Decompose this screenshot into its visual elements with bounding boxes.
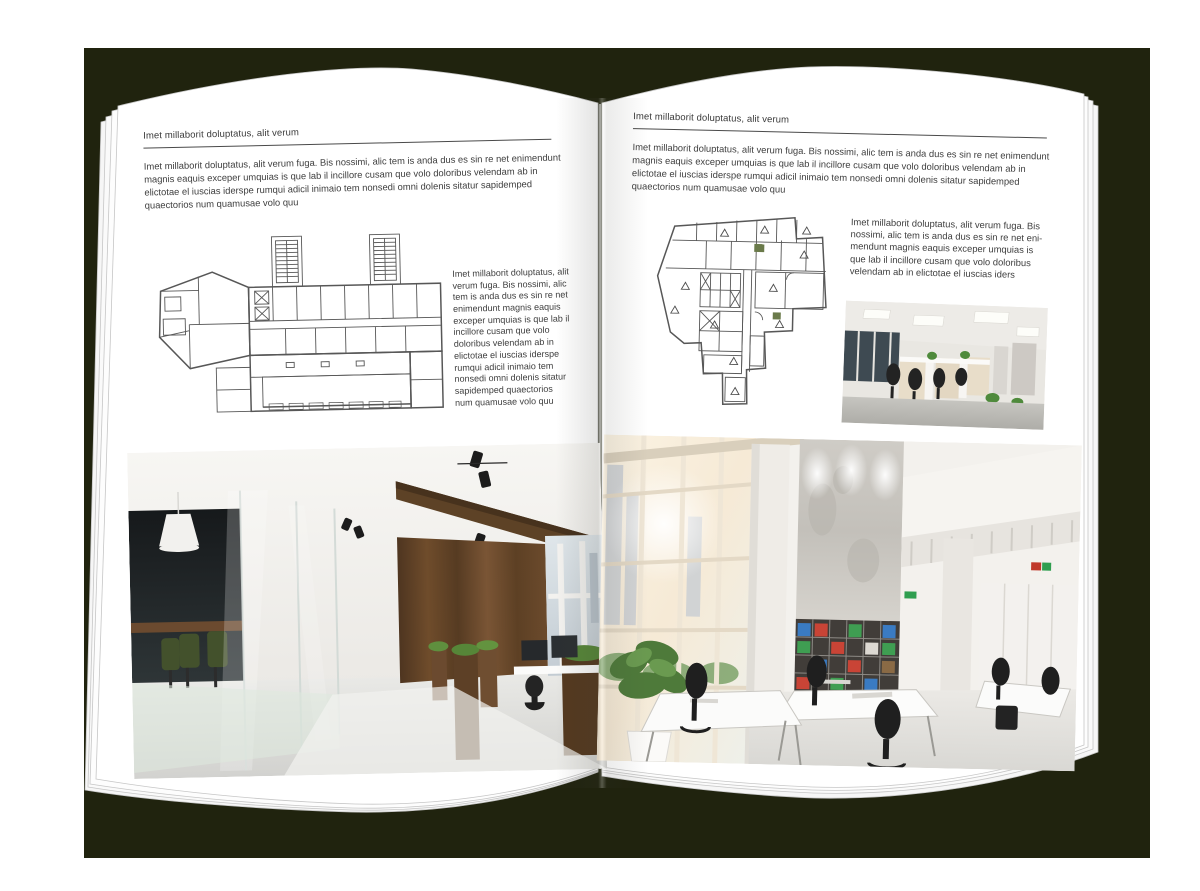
open-office-illustration [842,301,1048,430]
right-side-text: Imet millaborit doluptatus, alit verum f… [850,216,1049,282]
left-page: Imet millaborit doluptatus, alit verum I… [110,91,607,801]
right-intro-paragraph: Imet millaborit doluptatus, alit verum f… [632,141,1053,202]
small-office-photo [842,301,1048,430]
magazine-mockup: Imet millaborit doluptatus, alit verum I… [0,0,1200,891]
left-page-header: Imet millaborit doluptatus, alit verum [143,127,299,141]
left-floor-plan [153,227,449,421]
left-office-photo [127,443,607,779]
right-page: Imet millaborit doluptatus, alit verum I… [594,83,1096,794]
right-office-photo [597,435,1082,772]
floor-plan-drawing-icon [643,209,845,411]
right-header-rule [633,128,1047,138]
loft-office-illustration [127,443,607,779]
atrium-office-illustration [597,435,1082,772]
left-side-text: Imet millaborit doluptatus, alit verum f… [452,266,573,409]
right-page-header: Imet millaborit doluptatus, alit verum [633,111,789,126]
floor-plan-drawing-icon [153,227,449,421]
left-intro-paragraph: Imet millaborit doluptatus, alit verum f… [144,151,569,212]
right-floor-plan [643,209,845,411]
